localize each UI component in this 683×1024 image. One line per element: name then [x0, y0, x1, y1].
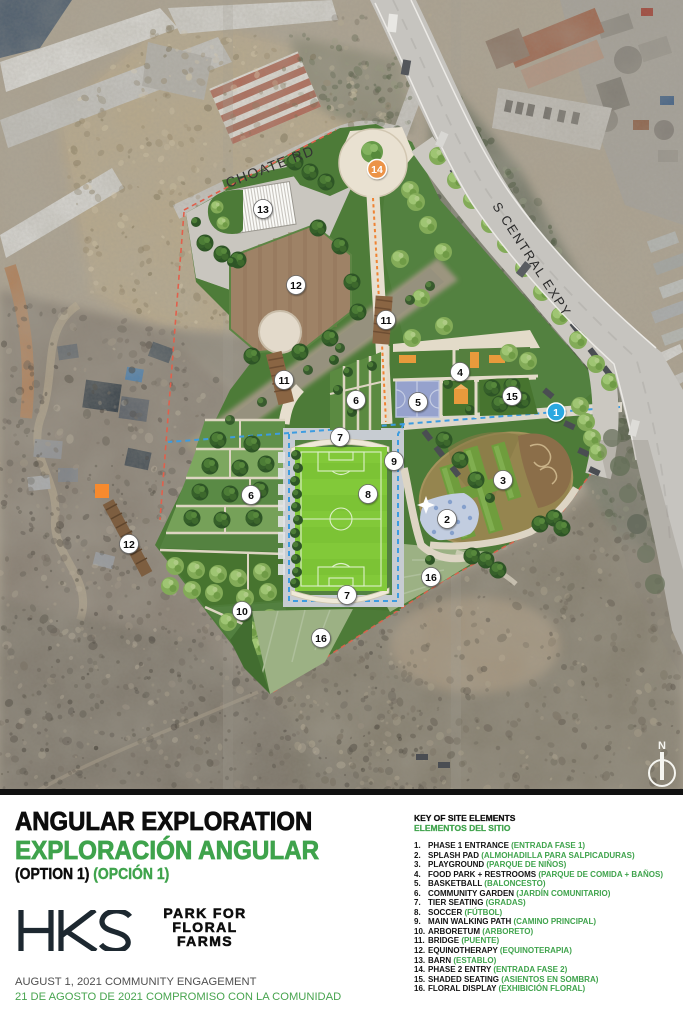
svg-text:11: 11: [278, 375, 289, 387]
svg-text:12: 12: [123, 539, 135, 551]
svg-text:8: 8: [365, 489, 371, 501]
svg-text:6: 6: [248, 490, 254, 502]
svg-text:1: 1: [553, 407, 559, 419]
svg-text:9: 9: [391, 456, 397, 468]
svg-text:5: 5: [415, 397, 421, 409]
svg-text:14: 14: [371, 164, 383, 176]
svg-text:16: 16: [425, 572, 437, 584]
svg-text:13: 13: [257, 204, 269, 216]
svg-text:16: 16: [315, 633, 327, 645]
svg-text:N: N: [658, 740, 666, 752]
svg-text:10: 10: [236, 606, 248, 618]
svg-text:7: 7: [337, 432, 343, 444]
svg-text:7: 7: [344, 590, 350, 602]
svg-text:15: 15: [506, 391, 518, 403]
svg-text:3: 3: [500, 475, 506, 487]
svg-text:2: 2: [444, 514, 450, 526]
svg-text:12: 12: [290, 280, 302, 292]
svg-text:11: 11: [380, 315, 391, 327]
svg-text:4: 4: [457, 367, 463, 379]
svg-text:6: 6: [353, 395, 359, 407]
